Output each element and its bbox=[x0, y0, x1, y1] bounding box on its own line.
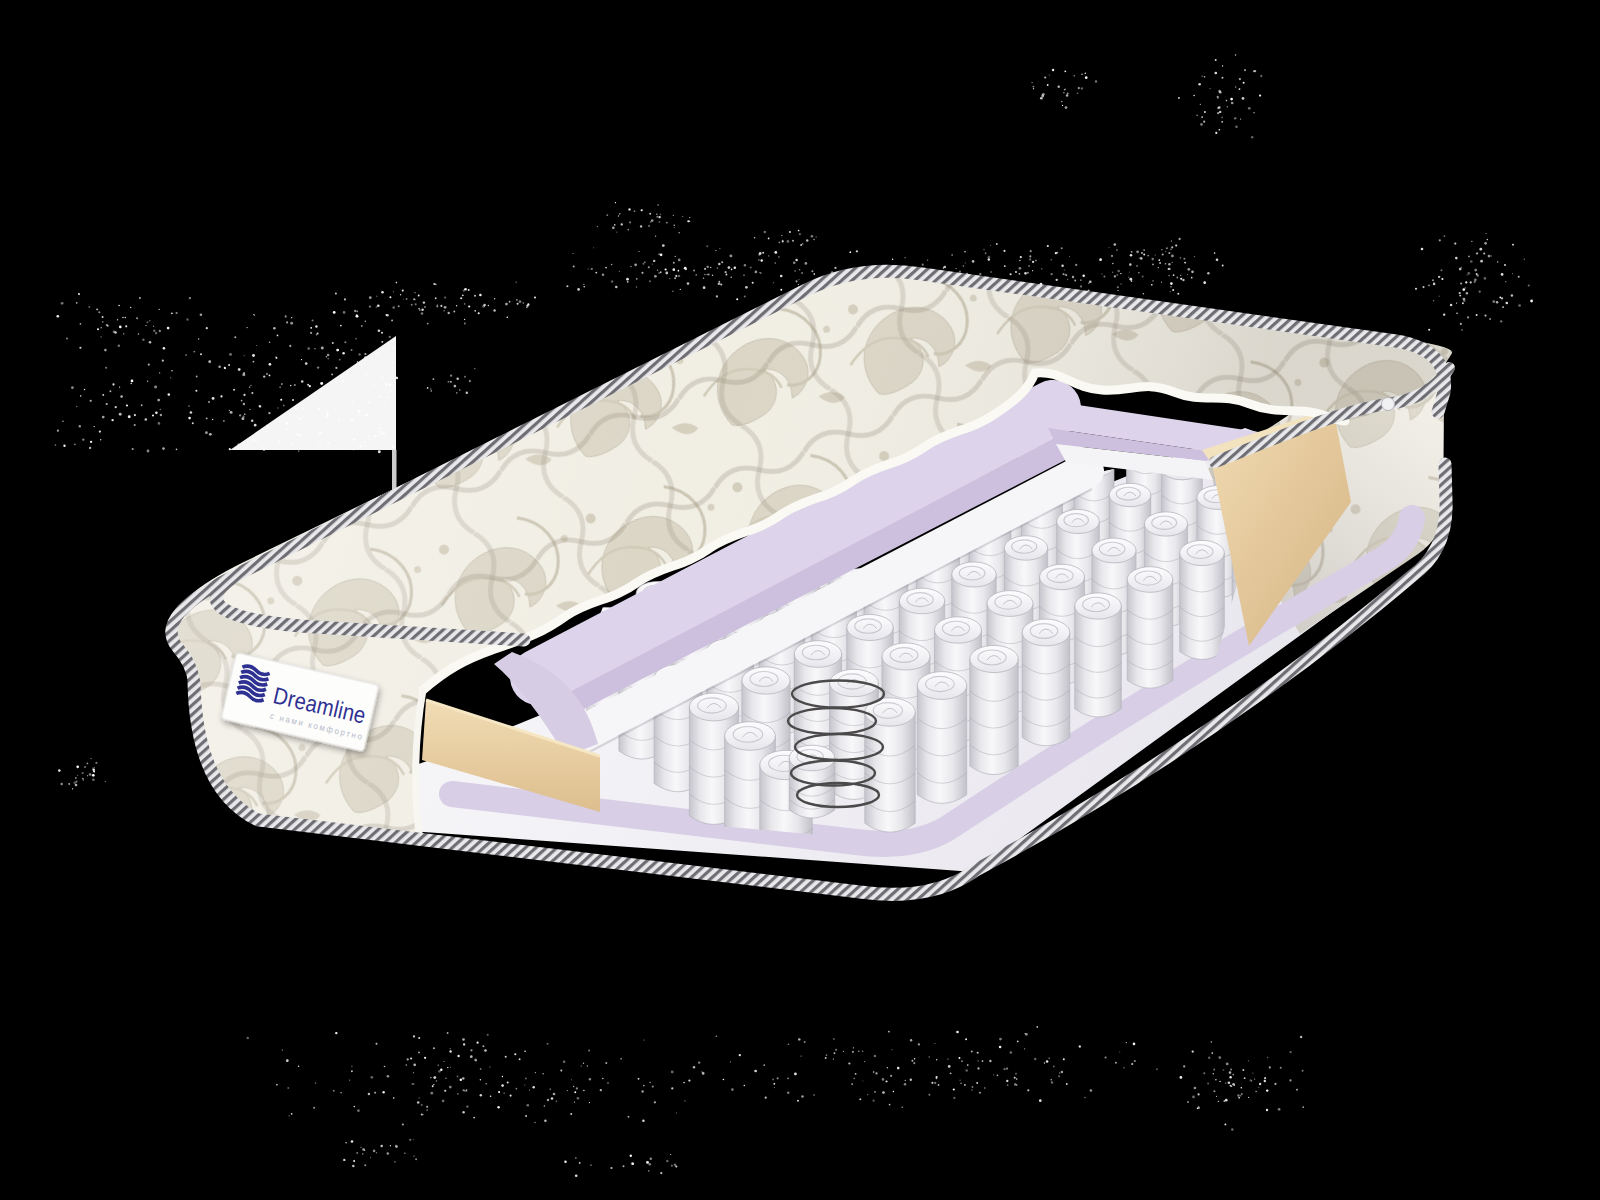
pocket-spring bbox=[917, 672, 966, 804]
pocket-spring bbox=[1075, 593, 1122, 717]
pocket-spring bbox=[865, 698, 915, 832]
pocket-spring bbox=[1180, 540, 1225, 659]
pocket-spring bbox=[1127, 567, 1173, 689]
scene-svg: Dreamline с нами комфортно bbox=[0, 0, 1600, 1200]
corner-button bbox=[1382, 398, 1395, 411]
pocket-spring bbox=[970, 645, 1018, 774]
product-image: Dreamline с нами комфортно bbox=[0, 0, 1600, 1200]
pocket-spring bbox=[1022, 619, 1070, 746]
